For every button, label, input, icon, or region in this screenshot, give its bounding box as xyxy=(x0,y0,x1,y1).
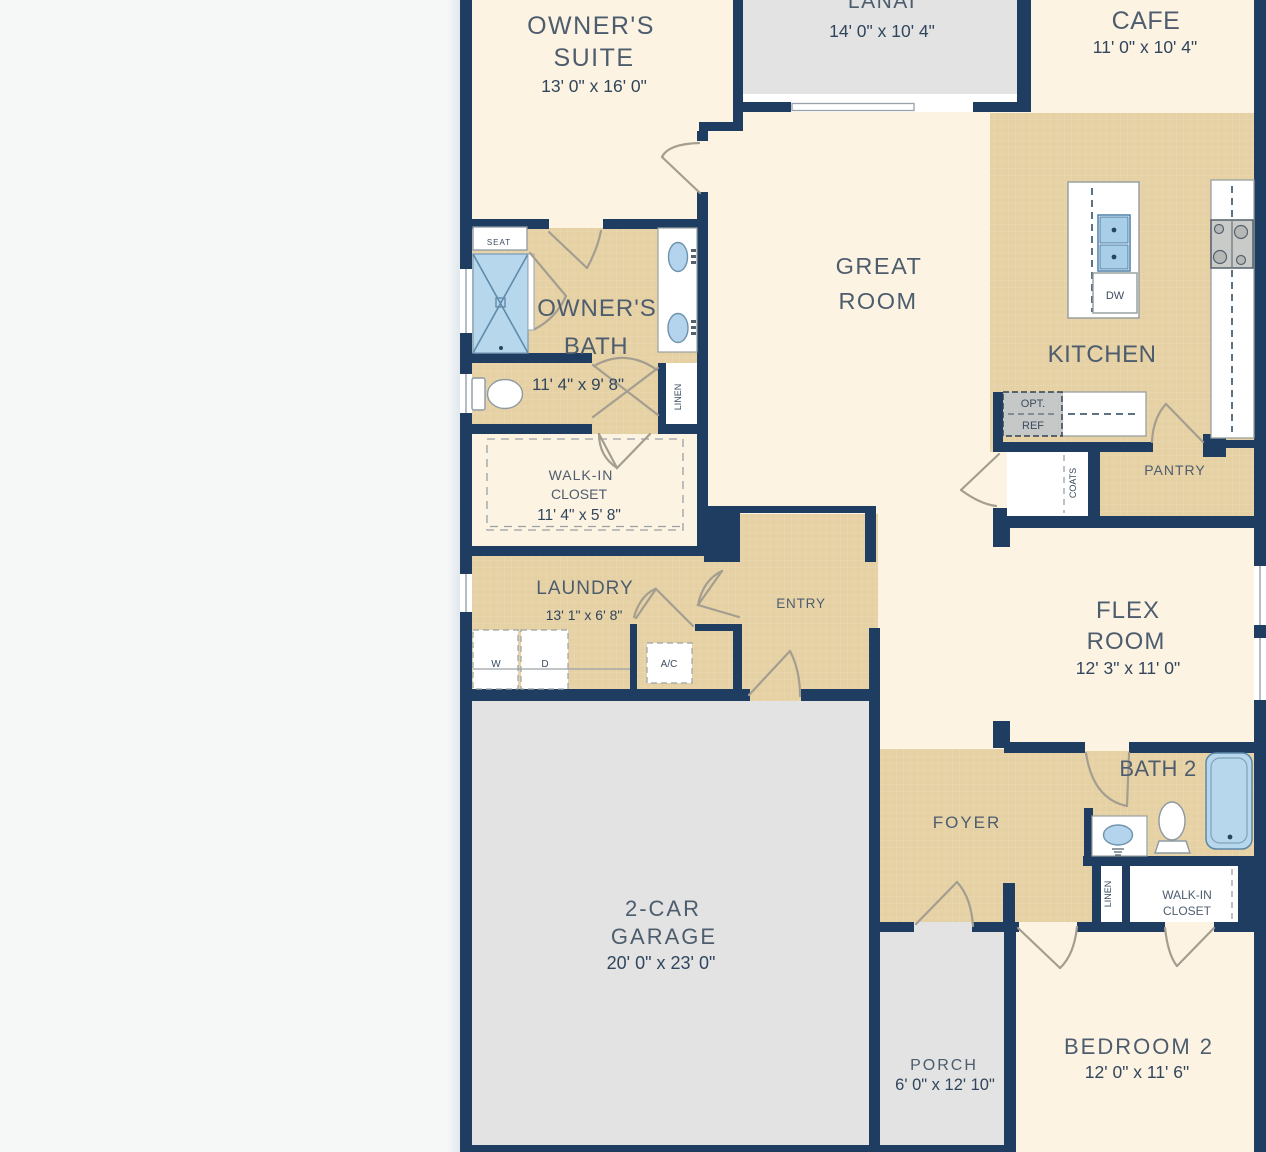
svg-text:LINEN: LINEN xyxy=(673,384,683,411)
svg-text:W: W xyxy=(491,659,501,670)
svg-text:PORCH: PORCH xyxy=(910,1057,978,1074)
svg-text:LANAI: LANAI xyxy=(848,0,916,13)
svg-text:OPT.: OPT. xyxy=(1021,398,1045,410)
svg-text:CLOSET: CLOSET xyxy=(1163,904,1212,918)
svg-text:SUITE: SUITE xyxy=(553,44,634,72)
svg-text:SEAT: SEAT xyxy=(487,238,511,247)
svg-text:LINEN: LINEN xyxy=(1103,881,1113,908)
svg-text:KITCHEN: KITCHEN xyxy=(1048,341,1157,368)
svg-text:REF: REF xyxy=(1022,420,1044,432)
svg-text:ROOM: ROOM xyxy=(1087,628,1166,655)
svg-text:6' 0" x 12' 10": 6' 0" x 12' 10" xyxy=(895,1076,995,1094)
svg-text:14' 0" x 10' 4": 14' 0" x 10' 4" xyxy=(829,21,935,41)
svg-text:CLOSET: CLOSET xyxy=(551,486,607,502)
svg-text:12' 0" x 11' 6": 12' 0" x 11' 6" xyxy=(1085,1062,1189,1082)
svg-text:11' 4" x 5' 8": 11' 4" x 5' 8" xyxy=(537,507,621,524)
svg-text:PANTRY: PANTRY xyxy=(1144,462,1206,478)
svg-text:OWNER'S: OWNER'S xyxy=(527,12,655,40)
svg-text:11' 0" x 10' 4": 11' 0" x 10' 4" xyxy=(1093,37,1197,57)
svg-text:DW: DW xyxy=(1106,290,1125,302)
svg-text:GARAGE: GARAGE xyxy=(611,924,717,949)
svg-text:OWNER'S: OWNER'S xyxy=(537,295,657,322)
svg-text:LAUNDRY: LAUNDRY xyxy=(536,578,633,599)
svg-text:D: D xyxy=(541,659,548,670)
svg-text:13' 0" x 16' 0": 13' 0" x 16' 0" xyxy=(541,76,647,96)
svg-text:WALK-IN: WALK-IN xyxy=(1162,888,1212,902)
svg-text:A/C: A/C xyxy=(661,659,678,670)
svg-text:BATH 2: BATH 2 xyxy=(1119,756,1196,781)
svg-text:20' 0" x 23' 0": 20' 0" x 23' 0" xyxy=(607,953,716,973)
svg-text:FLEX: FLEX xyxy=(1096,597,1160,624)
svg-text:CAFE: CAFE xyxy=(1112,7,1181,35)
svg-text:BATH: BATH xyxy=(564,333,628,360)
svg-text:12' 3" x 11' 0": 12' 3" x 11' 0" xyxy=(1076,658,1180,678)
svg-text:COATS: COATS xyxy=(1068,468,1078,498)
svg-text:FOYER: FOYER xyxy=(933,813,1002,832)
svg-text:11' 4" x 9' 8": 11' 4" x 9' 8" xyxy=(532,375,624,394)
svg-text:ROOM: ROOM xyxy=(838,288,917,314)
svg-text:13' 1" x 6' 8": 13' 1" x 6' 8" xyxy=(546,607,623,623)
svg-text:WALK-IN: WALK-IN xyxy=(549,467,614,483)
svg-text:GREAT: GREAT xyxy=(836,253,923,279)
svg-text:ENTRY: ENTRY xyxy=(776,596,826,611)
svg-text:BEDROOM 2: BEDROOM 2 xyxy=(1064,1034,1214,1059)
svg-text:2-CAR: 2-CAR xyxy=(625,896,701,921)
